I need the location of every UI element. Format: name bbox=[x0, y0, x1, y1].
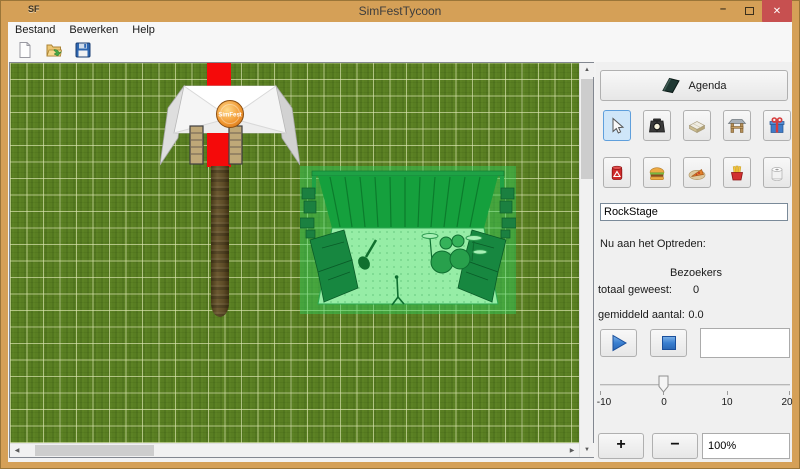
zoom-level-field[interactable] bbox=[702, 433, 790, 459]
cursor-icon bbox=[607, 116, 627, 136]
scroll-down-button[interactable]: ▼ bbox=[580, 443, 594, 457]
app-window: SF SimFestTycoon – ✕ Bestand Bewerken He… bbox=[0, 0, 800, 469]
speed-slider[interactable]: -10 0 10 20 bbox=[600, 370, 790, 412]
tool-spotlight[interactable] bbox=[643, 110, 671, 141]
slider-track[interactable] bbox=[600, 384, 790, 386]
slider-thumb[interactable] bbox=[658, 375, 669, 393]
tool-trash-can[interactable] bbox=[603, 157, 631, 188]
speaker-tower-left bbox=[190, 126, 203, 164]
visitors-header: Bezoekers bbox=[656, 267, 736, 279]
play-icon bbox=[608, 333, 630, 353]
stage-preview[interactable] bbox=[300, 166, 516, 314]
play-button[interactable] bbox=[600, 329, 637, 357]
minimize-button[interactable]: – bbox=[710, 0, 736, 22]
slider-tick bbox=[727, 391, 728, 395]
save-file-button[interactable] bbox=[72, 39, 94, 61]
tool-toilet-roll[interactable] bbox=[763, 157, 791, 188]
close-button[interactable]: ✕ bbox=[762, 0, 792, 22]
titlebar[interactable]: SF SimFestTycoon – ✕ bbox=[0, 0, 800, 22]
maximize-icon bbox=[745, 7, 754, 15]
pizza-icon bbox=[687, 163, 707, 183]
window-controls: – ✕ bbox=[710, 0, 792, 22]
toilet-roll-icon bbox=[767, 163, 787, 183]
horizontal-scroll-thumb[interactable] bbox=[35, 445, 154, 456]
total-visitors-value: 0 bbox=[656, 284, 736, 296]
menu-help[interactable]: Help bbox=[125, 23, 162, 37]
tool-gift[interactable] bbox=[763, 110, 791, 141]
speaker-tower-right bbox=[229, 126, 242, 164]
slider-tick-label: 10 bbox=[721, 397, 732, 408]
horizontal-scrollbar[interactable]: ◀ ▶ bbox=[10, 443, 579, 457]
scroll-left-button[interactable]: ◀ bbox=[10, 444, 24, 457]
window-content: Bestand Bewerken Help bbox=[8, 22, 792, 462]
entrance-gate-icon bbox=[727, 116, 747, 136]
open-file-button[interactable] bbox=[43, 39, 65, 61]
vertical-scrollbar[interactable]: ▲ ▼ bbox=[579, 63, 593, 457]
french-fries-icon bbox=[727, 163, 747, 183]
current-artist-box bbox=[700, 328, 790, 358]
map-canvas[interactable]: SimFest bbox=[10, 63, 579, 443]
slider-tick-label: 0 bbox=[661, 397, 667, 408]
hamburger-icon bbox=[647, 163, 667, 183]
new-file-icon bbox=[15, 40, 35, 60]
simfest-logo: SimFest bbox=[217, 101, 244, 128]
zoom-out-button[interactable]: − bbox=[652, 433, 698, 459]
agenda-button-label: Agenda bbox=[689, 80, 727, 92]
save-file-icon bbox=[73, 40, 93, 60]
zoom-in-button[interactable]: + bbox=[598, 433, 644, 459]
stage-name-input[interactable] bbox=[600, 203, 788, 221]
tool-stage-platform[interactable] bbox=[683, 110, 711, 141]
slider-tick-label: -10 bbox=[597, 397, 611, 408]
carpet-under-tent bbox=[207, 133, 231, 166]
scroll-up-button[interactable]: ▲ bbox=[580, 63, 594, 77]
open-file-icon bbox=[44, 40, 64, 60]
stage-platform-icon bbox=[687, 116, 707, 136]
entrance-tent[interactable]: SimFest bbox=[160, 78, 300, 170]
tool-french-fries[interactable] bbox=[723, 157, 751, 188]
map-canvas-container: SimFest bbox=[9, 62, 594, 458]
spotlight-icon bbox=[647, 116, 667, 136]
agenda-book-icon bbox=[662, 77, 680, 94]
window-title: SimFestTycoon bbox=[0, 4, 800, 18]
tool-entrance-gate[interactable] bbox=[723, 110, 751, 141]
slider-tick bbox=[789, 391, 790, 395]
tool-select-cursor[interactable] bbox=[603, 110, 631, 141]
slider-tick-label: 20 bbox=[781, 397, 792, 408]
menu-bestand[interactable]: Bestand bbox=[8, 23, 62, 37]
maximize-button[interactable] bbox=[736, 0, 762, 22]
menubar: Bestand Bewerken Help bbox=[8, 22, 792, 38]
vertical-scroll-thumb[interactable] bbox=[581, 79, 593, 179]
menu-bewerken[interactable]: Bewerken bbox=[62, 23, 125, 37]
slider-tick bbox=[600, 391, 601, 395]
new-file-button[interactable] bbox=[14, 39, 36, 61]
average-visitors-value: 0.0 bbox=[656, 309, 736, 321]
tool-pizza[interactable] bbox=[683, 157, 711, 188]
stop-button[interactable] bbox=[650, 329, 687, 357]
tool-hamburger[interactable] bbox=[643, 157, 671, 188]
stop-icon bbox=[659, 333, 679, 353]
gift-icon bbox=[767, 116, 787, 136]
trash-can-icon bbox=[607, 163, 627, 183]
tent-logo-text: SimFest bbox=[218, 113, 241, 119]
stage-truss bbox=[312, 171, 504, 176]
dirt-path[interactable] bbox=[211, 162, 229, 317]
scroll-right-button[interactable]: ▶ bbox=[565, 444, 579, 457]
agenda-button[interactable]: Agenda bbox=[600, 70, 788, 101]
now-performing-label: Nu aan het Optreden: bbox=[600, 238, 706, 250]
side-panel: Agenda bbox=[596, 62, 792, 462]
toolbar bbox=[8, 38, 792, 62]
